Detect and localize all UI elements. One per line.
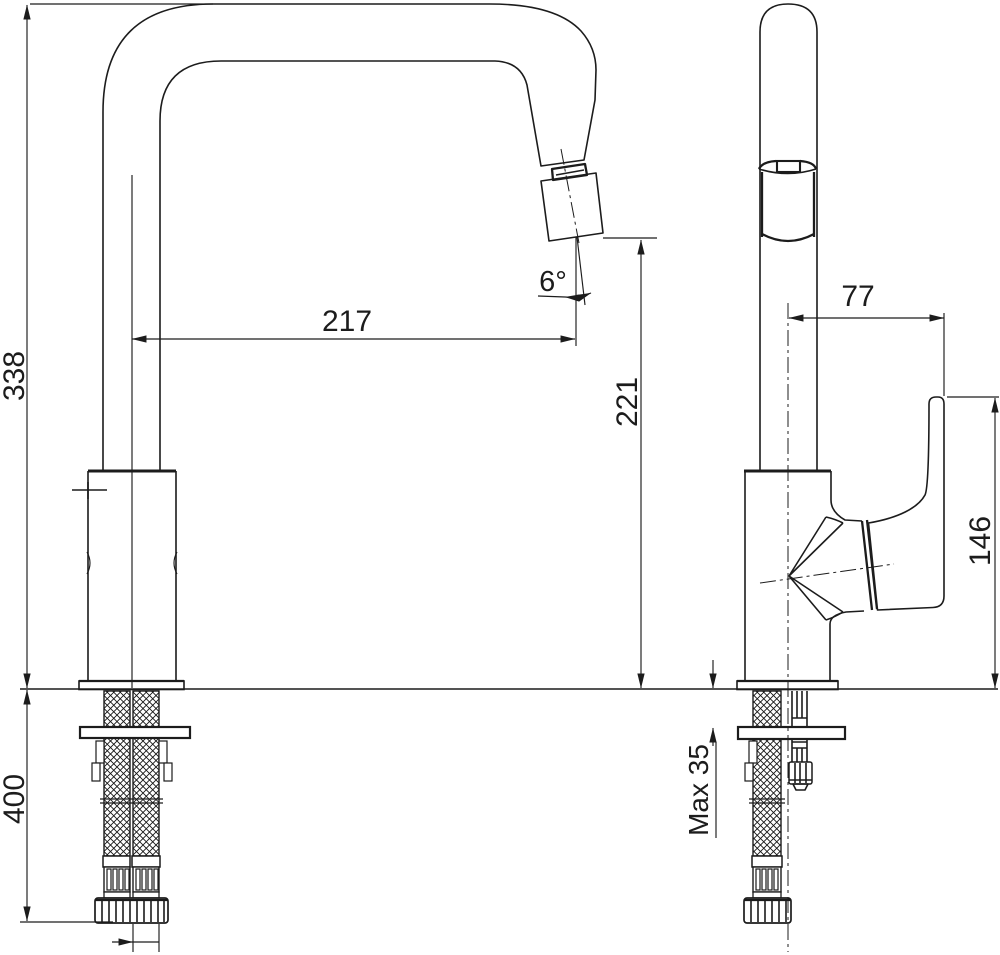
side-aerator xyxy=(759,161,816,241)
dim-hose-spacing xyxy=(112,924,159,952)
dim-spout-reach: 217 xyxy=(132,175,576,688)
dim-handle-height: 146 xyxy=(947,397,999,688)
side-view xyxy=(737,4,944,952)
front-body-reference-tick xyxy=(72,482,107,499)
front-hose-connectors xyxy=(104,867,159,898)
dim-max-counter-thickness: Max 35 xyxy=(683,660,716,838)
front-hose-clip xyxy=(164,763,172,781)
front-hose-clip xyxy=(159,741,167,763)
drawing-canvas: 338 400 217 221 6° xyxy=(0,0,1000,955)
side-mounting-plate xyxy=(738,727,845,739)
dim-spout-height-label: 338 xyxy=(0,351,31,401)
faucet-dimension-drawing: 338 400 217 221 6° xyxy=(0,0,1000,955)
front-hose-ferrule xyxy=(132,856,160,867)
dim-handle-offset-label: 77 xyxy=(841,280,874,313)
front-view xyxy=(72,4,603,923)
dim-hose-length: 400 xyxy=(0,690,113,922)
dim-max-counter-thickness-label: Max 35 xyxy=(683,744,714,836)
dim-outlet-height-label: 221 xyxy=(611,377,644,427)
dim-spout-reach-label: 217 xyxy=(322,305,372,338)
front-mounting-plate xyxy=(80,727,190,738)
side-lever-handle xyxy=(869,397,945,610)
front-nozzle-centerline xyxy=(561,149,579,243)
front-hoses xyxy=(80,691,190,923)
side-threaded-stud xyxy=(789,691,812,790)
side-knurled-nut xyxy=(744,898,791,923)
front-hose-ferrule xyxy=(103,856,130,867)
dim-outlet-angle: 6° xyxy=(538,237,591,305)
front-hose-clip xyxy=(96,741,104,763)
dim-spout-height: 338 xyxy=(0,4,213,688)
side-body-right-lower xyxy=(830,611,864,681)
front-knurled-nut xyxy=(95,898,168,923)
front-spout-outline xyxy=(103,4,596,471)
dim-handle-height-label: 146 xyxy=(964,516,997,566)
dim-outlet-height: 221 xyxy=(603,238,657,688)
dim-outlet-angle-label: 6° xyxy=(539,266,567,298)
dim-hose-length-label: 400 xyxy=(0,774,31,824)
dim-handle-offset: 77 xyxy=(789,280,944,396)
front-hose-clip xyxy=(92,763,100,781)
side-body-right-upper xyxy=(831,471,862,521)
side-lever-cone xyxy=(789,517,843,620)
